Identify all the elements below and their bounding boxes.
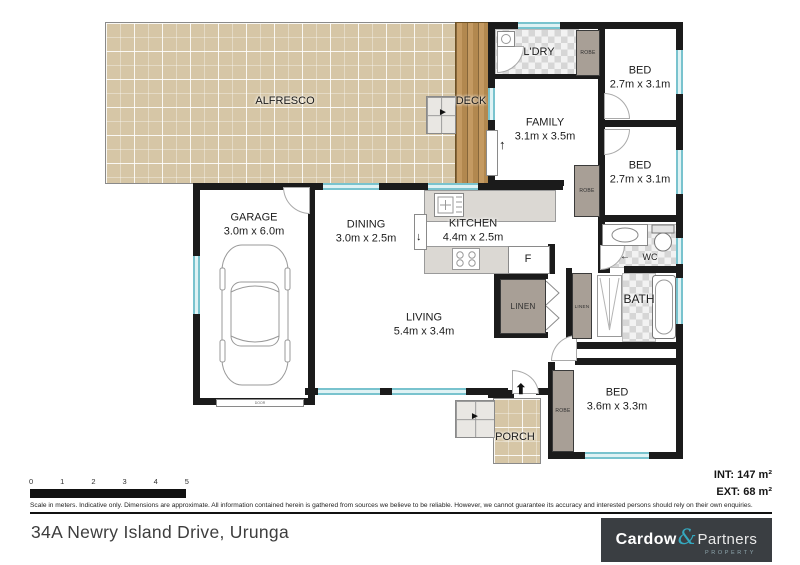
logo-ampersand-icon: & — [678, 525, 697, 549]
bifold-door-icon — [546, 281, 560, 331]
room-label-kitchen: KITCHEN4.4m x 2.5m — [443, 217, 504, 246]
room-label-bed1: BED2.7m x 3.1m — [610, 64, 671, 93]
window — [318, 388, 380, 395]
deck-steps-arrow-icon: ► — [438, 108, 448, 118]
logo-partners: Partners — [697, 531, 757, 548]
wc-arrow-icon: ← — [620, 252, 630, 262]
scalebar-ticks: 0 1 2 3 4 5 — [29, 477, 189, 486]
linen-closet: LINEN — [572, 273, 592, 339]
toilet-icon — [651, 224, 675, 252]
room-label-deck: DECK — [456, 94, 487, 108]
car-icon — [218, 240, 292, 390]
garage-door-label: DOOR — [255, 401, 266, 405]
room-label-dining: DINING3.0m x 2.5m — [336, 218, 397, 247]
wall-segment — [676, 352, 683, 459]
robe-closet: ROBE — [574, 165, 600, 217]
robe-label: ROBE — [580, 50, 595, 56]
linen-label: LINEN — [510, 302, 535, 311]
wall-segment — [605, 120, 683, 127]
scalebar-tick: 0 — [29, 477, 33, 486]
bathtub-icon — [652, 275, 676, 339]
window — [585, 452, 649, 459]
room-label-bed2: BED2.7m x 3.1m — [610, 159, 671, 188]
window — [676, 50, 683, 94]
scalebar-tick: 5 — [185, 477, 189, 486]
room-label-porch: PORCH — [495, 430, 535, 444]
disclaimer-text: Scale in meters. Indicative only. Dimens… — [30, 502, 772, 509]
room-label-bath: BATH — [623, 292, 654, 308]
robe-label: ROBE — [555, 408, 570, 414]
sliding-door — [486, 130, 498, 176]
window — [676, 278, 683, 324]
wall-segment — [570, 342, 683, 349]
door-arc — [283, 187, 310, 214]
kitchen-sink-icon — [434, 193, 464, 217]
vanity-basin-icon — [602, 224, 648, 246]
wall-segment — [488, 29, 495, 88]
window — [676, 150, 683, 194]
wall-segment — [488, 120, 495, 130]
slider-arrow-icon: ↑ — [499, 138, 506, 151]
logo-cardow: Cardow — [616, 531, 677, 549]
window — [323, 183, 379, 190]
room-label-ldry: L'DRY — [523, 45, 554, 59]
scalebar — [30, 489, 186, 498]
robe-closet: ROBE — [576, 30, 600, 76]
wall-segment — [488, 390, 514, 398]
area-int: INT: 147 m² — [714, 467, 772, 484]
window — [488, 88, 495, 120]
logo-tagline: PROPERTY — [705, 550, 756, 556]
window — [392, 388, 466, 395]
wall-segment — [598, 215, 683, 222]
door-arc — [604, 93, 630, 119]
property-address: 34A Newry Island Drive, Urunga — [31, 522, 289, 543]
porch-steps-arrow-icon: ► — [470, 412, 480, 422]
agency-logo: Cardow & Partners PROPERTY — [601, 518, 772, 562]
entry-arrow-icon: ⬆ — [515, 382, 527, 396]
scalebar-tick: 2 — [91, 477, 95, 486]
linen-label: LINEN — [575, 304, 590, 309]
room-label-living: LIVING5.4m x 3.4m — [394, 311, 455, 340]
garage-roller-door: DOOR — [216, 399, 304, 407]
area-ext: EXT: 68 m² — [714, 484, 772, 501]
fridge-label: F — [525, 252, 532, 266]
window — [193, 256, 200, 314]
room-label-family: FAMILY3.1m x 3.5m — [515, 116, 576, 145]
room-label-bed3: BED3.6m x 3.3m — [587, 386, 648, 415]
linen-closet: LINEN — [500, 279, 546, 334]
window — [428, 183, 478, 190]
window — [676, 238, 683, 264]
area-summary: INT: 147 m² EXT: 68 m² — [714, 467, 772, 500]
door-arc — [604, 129, 630, 155]
room-label-alfresco: ALFRESCO — [255, 94, 314, 108]
wall-segment — [308, 190, 315, 398]
agency-logo-name: Cardow & Partners — [616, 525, 758, 549]
wall-segment — [575, 358, 683, 365]
shower-icon — [597, 275, 622, 337]
scalebar-tick: 4 — [154, 477, 158, 486]
stove-icon — [452, 248, 480, 270]
robe-closet: ROBE — [552, 370, 574, 452]
laundry-tub-icon — [497, 31, 515, 47]
robe-label: ROBE — [579, 188, 594, 194]
divider-rule — [30, 512, 772, 514]
scalebar-tick: 3 — [122, 477, 126, 486]
wall-segment — [624, 266, 683, 273]
scalebar-tick: 1 — [60, 477, 64, 486]
room-label-garage: GARAGE3.0m x 6.0m — [224, 211, 285, 240]
room-label-wc: WC — [643, 252, 658, 264]
window — [518, 22, 560, 29]
kitchen-arrow-icon: ↓ — [416, 232, 422, 243]
